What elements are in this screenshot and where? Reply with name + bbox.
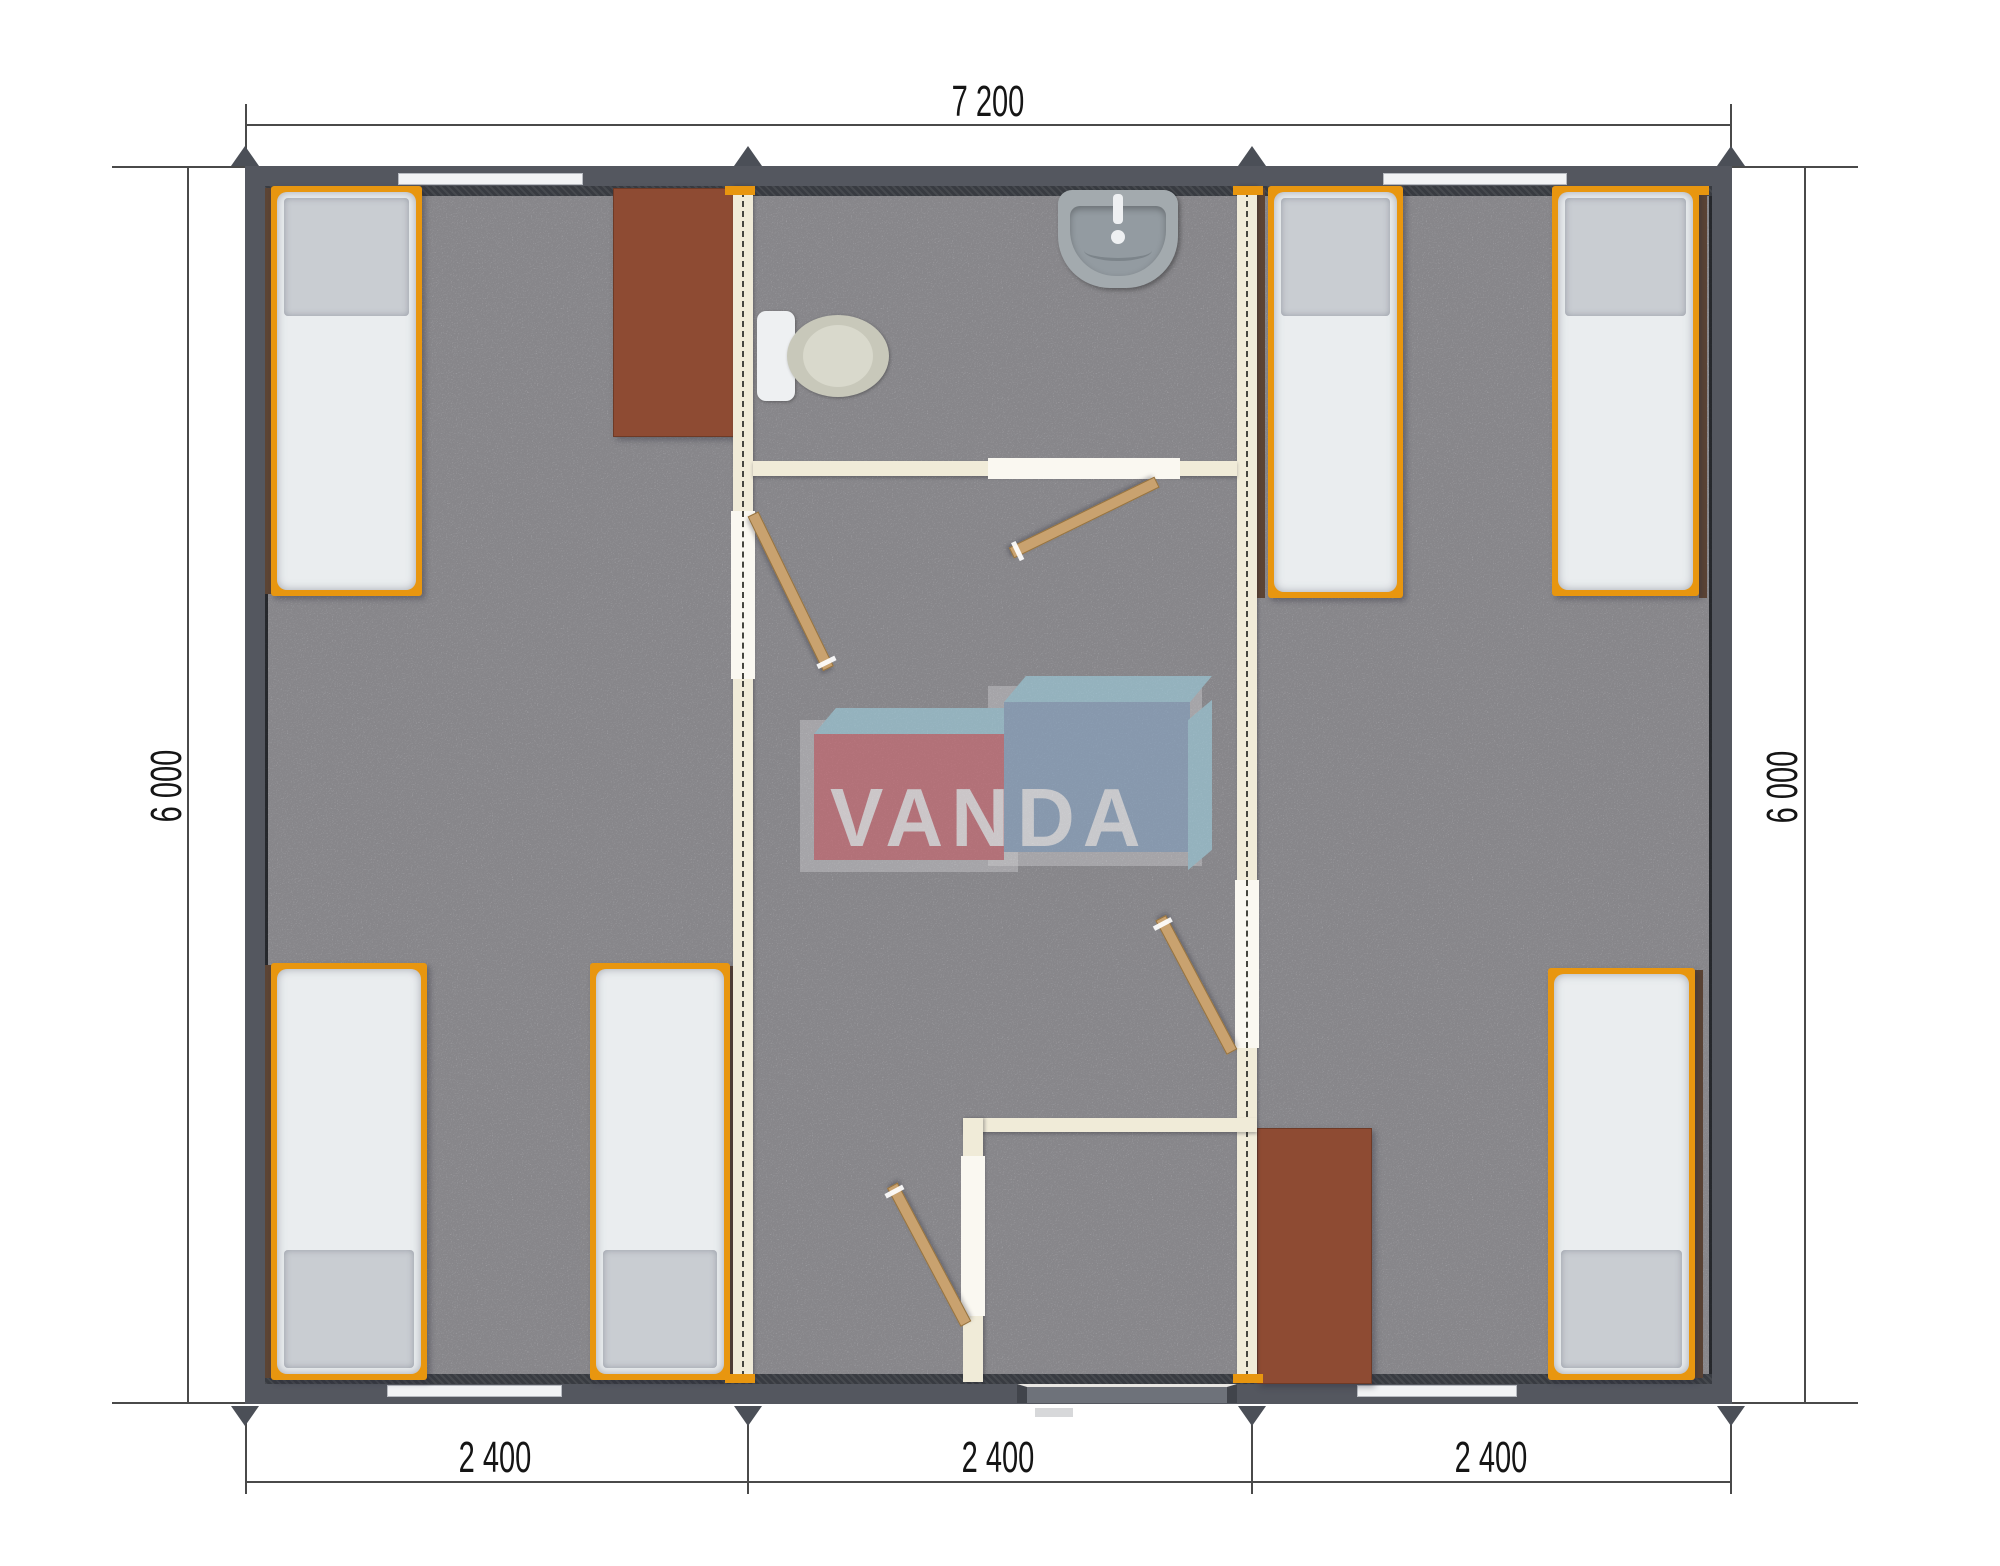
frame-bracket — [1695, 186, 1709, 195]
window-bottom-left — [387, 1385, 562, 1397]
bed-left-bottom-1 — [271, 963, 427, 1380]
watermark-text: VANDA — [830, 771, 1149, 866]
frame-bracket — [1233, 1374, 1263, 1383]
dim-label-depth-right: 6 000 — [1758, 751, 1808, 824]
window-reveal-right-1 — [1699, 188, 1707, 598]
window-top-left — [398, 173, 583, 185]
dim-label-module-2: 2 400 — [962, 1433, 1035, 1483]
dim-ext-right-top — [1732, 166, 1858, 168]
bed-right-bottom — [1548, 968, 1695, 1380]
marker-bottom-4 — [1717, 1406, 1745, 1426]
window-reveal-partition-right — [1257, 188, 1265, 598]
pillow — [1565, 198, 1686, 316]
watermark-blue-box-top — [1004, 676, 1212, 702]
dim-label-module-1: 2 400 — [459, 1433, 532, 1483]
marker-bottom-3 — [1238, 1406, 1266, 1426]
toilet — [757, 311, 892, 401]
marker-top-4 — [1717, 146, 1745, 166]
partition-right-dashes-overlay — [1246, 880, 1248, 1048]
dim-ext-left-top — [112, 166, 247, 168]
wall-inner-lining-top — [265, 186, 1712, 196]
marker-top-3 — [1238, 146, 1266, 166]
dim-label-depth-left: 6 000 — [142, 750, 192, 823]
pillow — [1281, 198, 1390, 316]
desk-right — [1257, 1128, 1372, 1384]
partition-left — [733, 186, 753, 1382]
watermark-blue-box-side — [1188, 700, 1212, 870]
vestibule-wall-horizontal — [963, 1118, 1257, 1132]
building-plan: VANDA — [245, 166, 1732, 1404]
washbasin — [1058, 190, 1178, 288]
door-opening-vestibule — [961, 1156, 985, 1316]
dim-ext-right-bottom — [1732, 1402, 1858, 1404]
pillow — [284, 198, 409, 316]
door-opening-bathroom — [988, 458, 1180, 479]
entrance-threshold — [1035, 1408, 1073, 1417]
bed-right-top-2 — [1552, 186, 1699, 596]
faucet-handle — [1111, 230, 1125, 244]
dim-label-width: 7 200 — [952, 77, 1025, 127]
pillow — [284, 1250, 414, 1368]
dim-label-module-3: 2 400 — [1455, 1433, 1528, 1483]
floor: VANDA — [265, 186, 1712, 1384]
window-bottom-right — [1357, 1385, 1517, 1397]
marker-top-1 — [231, 146, 259, 166]
pillow — [1561, 1250, 1682, 1368]
watermark-red-box-top — [814, 708, 1026, 734]
vanda-watermark: VANDA — [798, 686, 1213, 881]
marker-bottom-1 — [231, 1406, 259, 1426]
frame-bracket — [725, 186, 755, 195]
floor-plan-canvas: 7 200 2 400 2 400 2 400 6 000 6 000 — [0, 0, 2000, 1566]
window-reveal-right-2 — [1695, 970, 1703, 1378]
bed-left-top — [271, 186, 422, 596]
partition-right — [1237, 186, 1257, 1382]
pillow — [603, 1250, 717, 1368]
wall-inner-lining-bottom — [265, 1374, 1712, 1384]
toilet-bowl — [787, 315, 889, 397]
bed-right-top-1 — [1268, 186, 1403, 598]
faucet-icon — [1113, 194, 1123, 224]
marker-bottom-2 — [734, 1406, 762, 1426]
frame-bracket — [1233, 186, 1263, 195]
desk-left — [613, 188, 740, 437]
window-top-right — [1383, 173, 1567, 185]
frame-bracket — [725, 1374, 755, 1383]
partition-joint-line — [1246, 191, 1248, 1377]
dim-ext-left-bottom — [112, 1402, 247, 1404]
partition-joint-line — [742, 191, 744, 1377]
bed-left-bottom-2 — [590, 963, 730, 1380]
entrance-door — [1017, 1384, 1237, 1403]
marker-top-2 — [734, 146, 762, 166]
partition-left-dashes-overlay — [742, 511, 744, 679]
